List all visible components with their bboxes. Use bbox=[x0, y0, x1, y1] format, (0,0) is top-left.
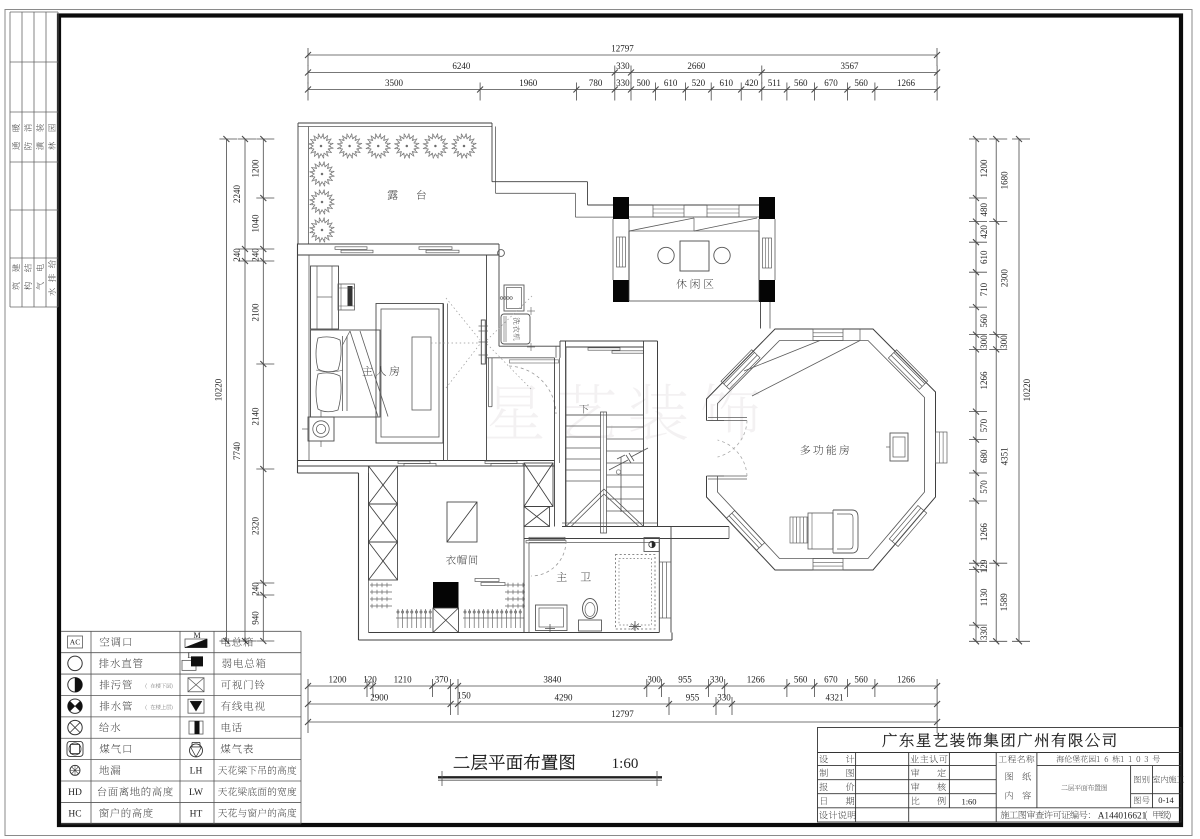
svg-text:560: 560 bbox=[794, 675, 808, 685]
svg-text:560: 560 bbox=[794, 78, 808, 88]
svg-text:1200: 1200 bbox=[329, 675, 348, 685]
svg-text:670: 670 bbox=[824, 78, 838, 88]
svg-text:560: 560 bbox=[979, 314, 989, 328]
svg-text:3500: 3500 bbox=[385, 78, 404, 88]
svg-text:240: 240 bbox=[232, 248, 242, 262]
svg-text:6240: 6240 bbox=[452, 61, 471, 71]
svg-text:1960: 1960 bbox=[519, 78, 538, 88]
svg-text:HC: HC bbox=[68, 809, 81, 819]
svg-text:2100: 2100 bbox=[250, 303, 260, 322]
svg-text:330: 330 bbox=[616, 78, 630, 88]
svg-text:7740: 7740 bbox=[232, 442, 242, 461]
svg-text:1210: 1210 bbox=[394, 675, 413, 685]
svg-text:A144016621: A144016621 bbox=[1098, 811, 1147, 821]
svg-text:HD: HD bbox=[68, 788, 82, 798]
svg-text:240: 240 bbox=[250, 248, 260, 262]
svg-text:500: 500 bbox=[637, 78, 651, 88]
svg-text:2900: 2900 bbox=[370, 693, 389, 703]
svg-text:1130: 1130 bbox=[979, 588, 989, 606]
svg-text:2320: 2320 bbox=[250, 517, 260, 536]
svg-text:330: 330 bbox=[616, 61, 630, 71]
svg-text:1200: 1200 bbox=[250, 159, 260, 178]
svg-text:3840: 3840 bbox=[543, 675, 562, 685]
svg-text:1:60: 1:60 bbox=[961, 796, 976, 806]
svg-text:780: 780 bbox=[589, 78, 603, 88]
svg-text:1266: 1266 bbox=[897, 78, 916, 88]
svg-text:120: 120 bbox=[363, 675, 377, 685]
svg-text:150: 150 bbox=[457, 691, 471, 701]
svg-text:300: 300 bbox=[647, 675, 661, 685]
svg-text:HT: HT bbox=[190, 809, 203, 819]
svg-text:520: 520 bbox=[692, 78, 706, 88]
svg-text:240: 240 bbox=[250, 582, 260, 596]
svg-text:610: 610 bbox=[979, 250, 989, 264]
svg-text:330: 330 bbox=[979, 626, 989, 640]
svg-text:570: 570 bbox=[979, 418, 989, 432]
svg-text:2140: 2140 bbox=[250, 407, 260, 426]
svg-text:1266: 1266 bbox=[979, 371, 989, 390]
svg-text:570: 570 bbox=[979, 480, 989, 494]
svg-text:511: 511 bbox=[768, 78, 781, 88]
svg-text:1266: 1266 bbox=[747, 675, 766, 685]
svg-text:4290: 4290 bbox=[555, 693, 574, 703]
svg-text:2660: 2660 bbox=[687, 61, 706, 71]
svg-text:710: 710 bbox=[979, 282, 989, 296]
svg-text:LH: LH bbox=[190, 767, 203, 777]
svg-text:955: 955 bbox=[678, 675, 692, 685]
svg-text:1:60: 1:60 bbox=[612, 756, 639, 772]
svg-text:4351: 4351 bbox=[999, 447, 1009, 465]
svg-text:940: 940 bbox=[250, 611, 260, 625]
svg-text:10220: 10220 bbox=[213, 378, 223, 401]
svg-text:610: 610 bbox=[664, 78, 678, 88]
svg-text:420: 420 bbox=[745, 78, 759, 88]
svg-text:1040: 1040 bbox=[250, 214, 260, 233]
svg-text:1680: 1680 bbox=[999, 171, 1009, 190]
svg-text:1589: 1589 bbox=[999, 593, 1009, 612]
svg-text:2300: 2300 bbox=[999, 269, 1009, 288]
svg-text:480: 480 bbox=[979, 203, 989, 217]
svg-text:370: 370 bbox=[435, 675, 449, 685]
svg-text:3567: 3567 bbox=[840, 61, 859, 71]
svg-text:4321: 4321 bbox=[826, 693, 844, 703]
svg-text:300: 300 bbox=[999, 335, 1009, 349]
svg-text:2240: 2240 bbox=[232, 185, 242, 204]
svg-text:129: 129 bbox=[979, 559, 989, 573]
svg-text:10220: 10220 bbox=[1022, 378, 1032, 401]
svg-text:610: 610 bbox=[719, 78, 733, 88]
svg-text:420: 420 bbox=[979, 225, 989, 239]
svg-text:12797: 12797 bbox=[611, 709, 634, 719]
svg-text:300: 300 bbox=[979, 335, 989, 349]
svg-text:560: 560 bbox=[854, 675, 868, 685]
svg-text:12797: 12797 bbox=[611, 44, 634, 54]
svg-text:330: 330 bbox=[710, 675, 724, 685]
svg-text:680: 680 bbox=[979, 449, 989, 463]
svg-text:670: 670 bbox=[824, 675, 838, 685]
svg-text:560: 560 bbox=[854, 78, 868, 88]
svg-text:330: 330 bbox=[717, 693, 731, 703]
svg-text:955: 955 bbox=[686, 693, 700, 703]
svg-text:1266: 1266 bbox=[979, 523, 989, 542]
svg-text:LW: LW bbox=[189, 788, 203, 798]
svg-text:AC: AC bbox=[70, 638, 80, 647]
svg-text:1266: 1266 bbox=[897, 675, 916, 685]
svg-text:1200: 1200 bbox=[979, 159, 989, 178]
svg-text:0-14: 0-14 bbox=[1158, 795, 1174, 805]
